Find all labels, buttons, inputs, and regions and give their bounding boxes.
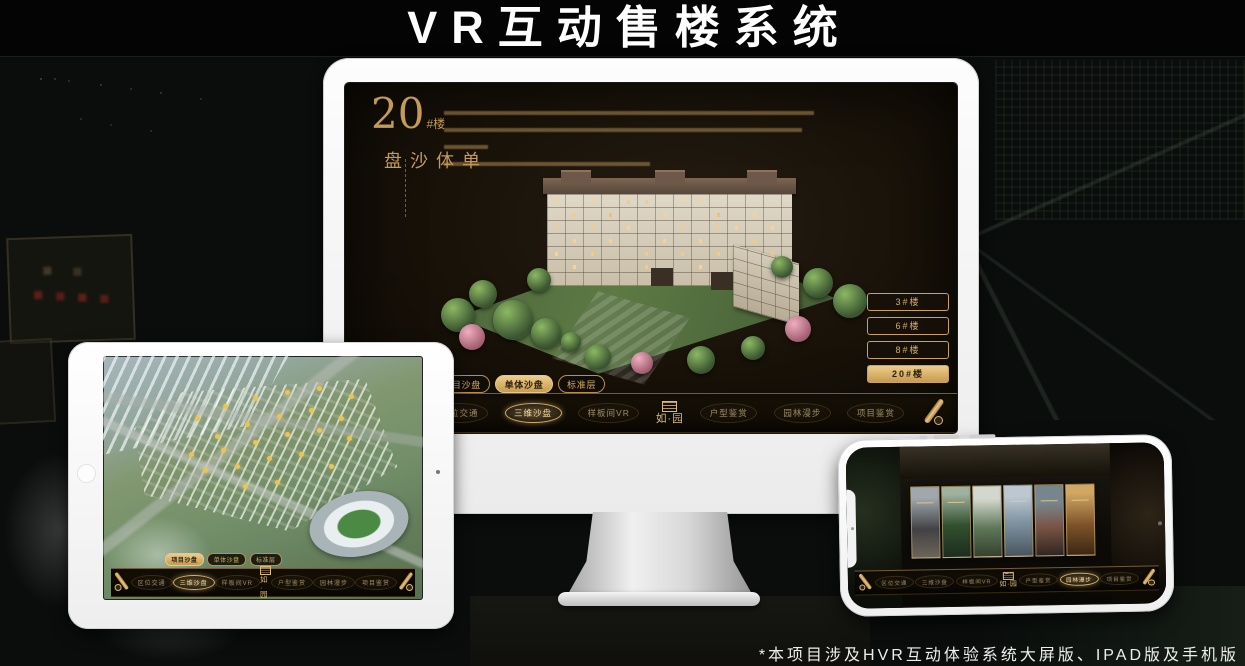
background-seam	[0, 56, 1245, 57]
tree-icon	[741, 336, 765, 360]
model-dormer	[561, 170, 591, 184]
tablet-home-button[interactable]	[77, 464, 96, 483]
building-button-3[interactable]: 3#楼	[867, 293, 949, 311]
brand-seal-icon	[1003, 572, 1013, 580]
tablet-sub-tabs: 项目沙盘 单体沙盘 标准层	[165, 553, 285, 566]
nav-item-showroom-vr[interactable]: 样板间VR	[578, 403, 639, 423]
nav-item-3d-sandbox[interactable]: 三维沙盘	[505, 403, 562, 423]
nav-item-3d-sandbox[interactable]: 三维沙盘	[173, 575, 215, 590]
nav-item-floorplans[interactable]: 户型鉴赏	[700, 403, 757, 423]
model-building	[547, 170, 792, 310]
building-button-6[interactable]: 6#楼	[867, 317, 949, 335]
tablet-screen: 项目沙盘 单体沙盘 标准层 区位交通 三维沙盘 样板间VR 如·园 户型鉴赏 园…	[103, 356, 423, 600]
tree-icon	[771, 256, 793, 278]
page-background: VR互动售楼系统 20#楼 单体沙盘	[0, 0, 1245, 666]
model-dormer	[747, 170, 777, 184]
brand-logo-text: 如·园	[260, 576, 271, 599]
scene-panel-lobby[interactable]	[1065, 483, 1095, 555]
nav-item-project-gallery[interactable]: 项目鉴赏	[1100, 571, 1139, 586]
building-selector: 3#楼 6#楼 8#楼 20#楼	[867, 293, 949, 389]
brand-logo[interactable]: 如·园	[260, 566, 271, 599]
headline-english-decor	[405, 159, 406, 217]
nav-item-garden-walk[interactable]: 园林漫步	[774, 403, 831, 423]
interior-ceiling	[884, 443, 1126, 479]
brand-seal-icon	[260, 566, 271, 575]
nav-item-project-gallery[interactable]: 项目鉴赏	[847, 403, 904, 423]
scene-panel-street[interactable]	[1034, 484, 1064, 556]
building-headline: 20#楼 单体沙盘	[371, 93, 445, 135]
footnote-text: *本项目涉及HVR互动体验系统大屏版、IPAD版及手机版	[759, 641, 1239, 665]
phone-front-camera-icon	[851, 527, 854, 530]
page-title: VR互动售楼系统	[0, 0, 1245, 56]
monitor-stand-neck	[568, 512, 752, 594]
tree-icon	[803, 268, 833, 298]
subtab-standard-floor[interactable]: 标准层	[250, 553, 282, 566]
phone-speaker-icon	[1158, 521, 1162, 525]
scene-panel-garden[interactable]	[941, 486, 971, 558]
flower-tree-icon	[631, 352, 653, 374]
subtab-single-sandbox[interactable]: 单体沙盘	[495, 375, 552, 393]
phone-volume-button[interactable]	[933, 435, 959, 439]
nav-item-project-gallery[interactable]: 项目鉴赏	[355, 575, 397, 590]
phone-mute-switch[interactable]	[919, 435, 927, 439]
scene-panel-interior[interactable]	[910, 486, 940, 558]
model-entrance	[651, 268, 673, 286]
nav-item-floorplans[interactable]: 户型鉴赏	[1019, 573, 1058, 588]
scene-panels	[910, 483, 1095, 558]
model-lit-windows	[547, 194, 550, 198]
brand-seal-icon	[662, 401, 677, 412]
scroll-menu-icon[interactable]	[115, 574, 131, 592]
nav-item-garden-walk[interactable]: 园林漫步	[1059, 572, 1098, 587]
monitor-stand-base	[558, 592, 760, 606]
tablet-camera-icon	[436, 470, 440, 474]
intro-text-line	[444, 128, 802, 132]
tree-icon	[527, 268, 551, 292]
phone-device: 区位交通 三维沙盘 样板间VR 如·园 户型鉴赏 园林漫步 项目鉴赏	[837, 434, 1174, 617]
scroll-menu-icon[interactable]	[1140, 570, 1155, 587]
nav-item-location[interactable]: 区位交通	[131, 575, 173, 590]
building-number-suffix: #楼	[426, 117, 445, 131]
scroll-menu-icon[interactable]	[921, 400, 943, 426]
tree-icon	[469, 280, 497, 308]
building-button-20[interactable]: 20#楼	[867, 365, 949, 383]
building-3d-model[interactable]	[435, 148, 865, 383]
nav-item-showroom-vr[interactable]: 样板间VR	[956, 574, 998, 589]
scroll-menu-icon[interactable]	[397, 574, 413, 592]
scene-panel-courtyard[interactable]	[972, 485, 1002, 557]
intro-text-line	[444, 111, 814, 115]
nav-item-location[interactable]: 区位交通	[875, 575, 914, 590]
tree-icon	[561, 332, 581, 352]
brand-logo[interactable]: 如·园	[999, 572, 1017, 589]
subtab-single-sandbox[interactable]: 单体沙盘	[207, 553, 246, 566]
brand-logo-text: 如·园	[656, 414, 684, 425]
nav-item-garden-walk[interactable]: 园林漫步	[313, 575, 355, 590]
subtab-project-sandbox[interactable]: 项目沙盘	[165, 553, 204, 566]
brand-logo-text: 如·园	[999, 582, 1017, 589]
background-text-specks	[40, 78, 42, 80]
background-plaque-fragment	[0, 338, 56, 426]
brand-logo[interactable]: 如·园	[656, 401, 684, 425]
tablet-bottom-nav: 区位交通 三维沙盘 样板间VR 如·园 户型鉴赏 园林漫步 项目鉴赏	[111, 568, 415, 597]
flower-tree-icon	[785, 316, 811, 342]
phone-volume-button[interactable]	[969, 434, 995, 438]
scroll-menu-icon[interactable]	[859, 575, 874, 592]
tablet-device: 项目沙盘 单体沙盘 标准层 区位交通 三维沙盘 样板间VR 如·园 户型鉴赏 园…	[68, 342, 454, 629]
building-button-8[interactable]: 8#楼	[867, 341, 949, 359]
monitor-sub-tabs: 项目沙盘 单体沙盘 标准层	[433, 375, 611, 393]
building-number: 20	[371, 89, 424, 138]
flower-tree-icon	[459, 324, 485, 350]
tree-icon	[585, 344, 611, 370]
tree-icon	[531, 318, 561, 348]
scene-panel-building[interactable]	[1003, 485, 1033, 557]
background-window-grid	[995, 60, 1245, 220]
tree-icon	[687, 346, 715, 374]
subtab-standard-floor[interactable]: 标准层	[558, 375, 605, 393]
phone-screen: 区位交通 三维沙盘 样板间VR 如·园 户型鉴赏 园林漫步 项目鉴赏	[846, 442, 1167, 609]
building-number-badges[interactable]	[103, 356, 108, 361]
background-plaque	[6, 234, 136, 344]
nav-item-floorplans[interactable]: 户型鉴赏	[271, 575, 313, 590]
nav-item-3d-sandbox[interactable]: 三维沙盘	[915, 574, 954, 589]
phone-bottom-nav: 区位交通 三维沙盘 样板间VR 如·园 户型鉴赏 园林漫步 项目鉴赏	[855, 565, 1159, 595]
nav-item-showroom-vr[interactable]: 样板间VR	[215, 575, 260, 590]
tree-icon	[493, 300, 533, 340]
tree-icon	[833, 284, 867, 318]
phone-notch	[846, 489, 856, 567]
model-dormer	[655, 170, 685, 184]
